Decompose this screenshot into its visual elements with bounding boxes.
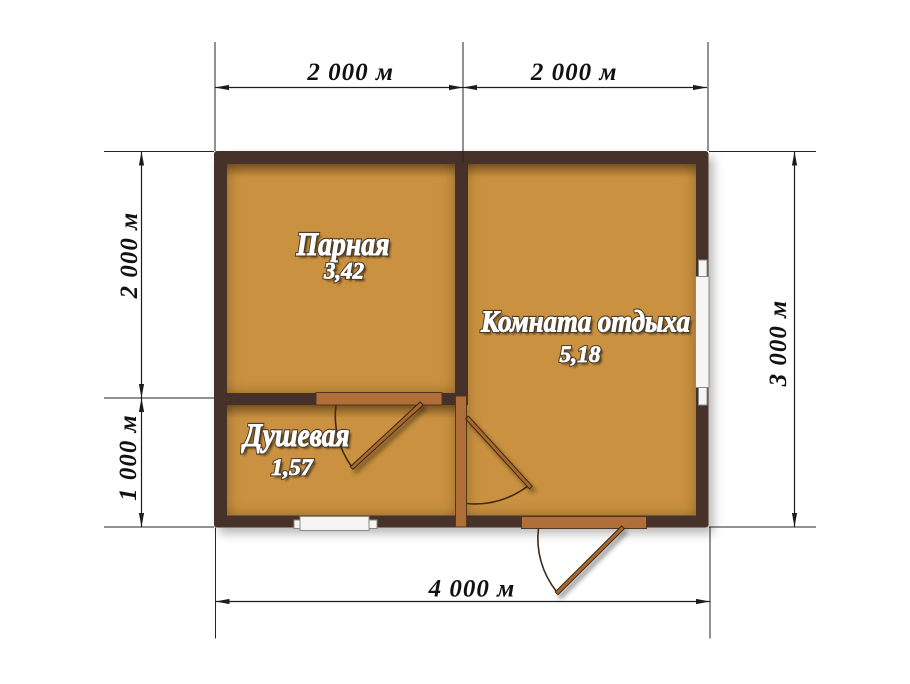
svg-text:Душевая: Душевая <box>241 418 349 454</box>
svg-text:3,42: 3,42 <box>323 259 364 284</box>
svg-text:4 000 м: 4 000 м <box>428 576 516 603</box>
svg-text:2 000 м: 2 000 м <box>116 212 143 300</box>
svg-text:1,57: 1,57 <box>271 455 314 480</box>
svg-text:5,18: 5,18 <box>560 342 602 367</box>
svg-text:2 000 м: 2 000 м <box>306 59 394 86</box>
svg-text:Комната отдыха: Комната отдыха <box>480 304 690 339</box>
svg-text:3 000 м: 3 000 м <box>765 300 792 388</box>
svg-text:1 000 м: 1 000 м <box>115 414 142 501</box>
svg-text:2 000 м: 2 000 м <box>530 59 618 86</box>
